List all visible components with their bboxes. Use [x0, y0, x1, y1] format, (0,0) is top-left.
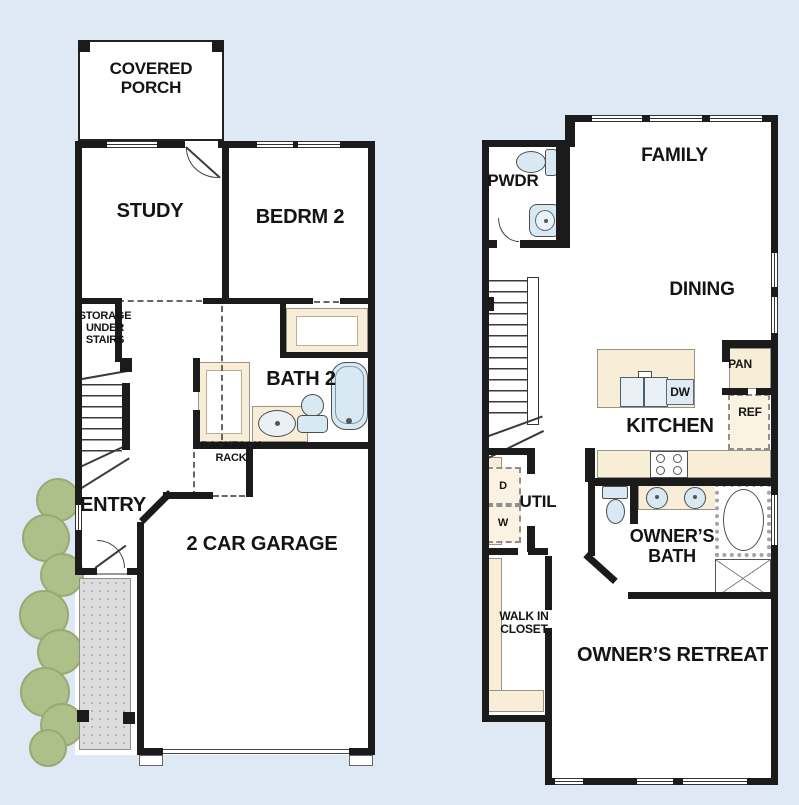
room-label-covered-porch: COVERED PORCH	[91, 60, 211, 97]
wall-segment	[588, 478, 771, 486]
bush	[29, 729, 67, 767]
porch-post	[78, 40, 90, 52]
toilet-bowl	[301, 394, 324, 417]
wall-segment	[482, 715, 552, 722]
wall-segment	[771, 333, 778, 495]
wall-segment	[482, 548, 518, 555]
wall-segment	[756, 388, 778, 395]
porch-post	[212, 40, 224, 52]
tub-faucet	[346, 418, 352, 424]
wall-segment	[163, 492, 213, 499]
garage-door	[163, 749, 349, 754]
wall-segment	[482, 240, 497, 248]
garage-pier	[139, 755, 163, 766]
wall-segment	[157, 141, 185, 148]
room-label-study: STUDY	[110, 200, 190, 222]
wall-segment	[75, 568, 97, 575]
wall-segment	[585, 448, 595, 482]
wall-segment	[137, 522, 144, 755]
wall-segment	[527, 448, 535, 474]
room-label-bedrm2: BEDRM 2	[252, 206, 348, 228]
sink-drain	[275, 421, 280, 426]
room-label-bath2: BATH 2	[258, 368, 344, 390]
wall-segment	[575, 115, 592, 122]
bath2-linen-shelf	[206, 370, 242, 434]
window	[771, 297, 778, 333]
room-label-washer: W	[486, 517, 520, 529]
window	[683, 778, 747, 785]
room-label-garage: 2 CAR GARAGE	[178, 533, 346, 555]
closet-shelf	[484, 690, 544, 712]
room-label-entry: ENTRY	[78, 494, 148, 516]
window	[555, 778, 583, 785]
garage-opening-dashed	[213, 495, 245, 497]
bedrm2-closet-shelf	[296, 316, 358, 346]
stove-burner	[656, 466, 665, 475]
wall-segment	[226, 298, 313, 304]
wall-segment	[528, 548, 548, 555]
stove-burner	[673, 454, 682, 463]
toilet-tank	[602, 486, 628, 499]
window	[637, 778, 673, 785]
wall-segment	[642, 115, 650, 122]
window	[771, 253, 778, 287]
room-label-ref: REF	[734, 406, 766, 419]
room-label-walk-in-closet: WALK IN CLOSET	[486, 610, 562, 636]
window	[592, 115, 642, 122]
wall-segment	[545, 715, 552, 785]
stair-rail	[527, 277, 539, 425]
toilet-bowl	[606, 499, 625, 524]
room-label-family: FAMILY	[632, 146, 717, 167]
wall-segment	[520, 240, 570, 248]
wall-segment	[722, 388, 748, 395]
wall-segment	[722, 340, 778, 348]
stair-rail-wall	[122, 383, 130, 450]
wall-segment	[120, 358, 132, 372]
stove-burner	[673, 466, 682, 475]
refrigerator-outline	[728, 394, 770, 450]
walkway-post	[123, 712, 135, 724]
window	[298, 141, 340, 148]
wall-segment	[222, 141, 229, 304]
room-label-pan: PAN	[719, 358, 761, 371]
room-label-owners-bath: OWNER’S BATH	[622, 527, 722, 567]
wall-segment	[771, 115, 778, 253]
hall-dashed	[221, 306, 223, 440]
garage-pier	[349, 755, 373, 766]
wall-segment	[673, 778, 683, 785]
stove-burner	[656, 454, 665, 463]
walkway-post	[77, 710, 89, 722]
window	[771, 495, 778, 545]
wall-segment	[482, 297, 494, 311]
wall-segment	[771, 545, 778, 785]
room-label-util: UTIL	[508, 493, 568, 512]
sink-drain	[693, 495, 697, 499]
alcove-dashed	[193, 452, 195, 497]
wall-segment	[137, 748, 163, 755]
sink-drain	[655, 495, 659, 499]
wall-segment	[193, 358, 200, 392]
stove	[650, 451, 688, 478]
wall-segment	[588, 486, 595, 556]
kitchen-sink	[620, 377, 668, 407]
wall-segment	[340, 298, 368, 304]
wall-segment	[747, 778, 778, 785]
window	[710, 115, 762, 122]
toilet-tank	[297, 415, 328, 433]
room-label-backpack-rack: BACKPACK RACK	[196, 440, 266, 464]
wall-segment	[702, 115, 710, 122]
opening-dashed	[118, 300, 202, 302]
floor2-footprint	[552, 715, 582, 785]
wall-segment	[556, 140, 570, 247]
room-label-kitchen: KITCHEN	[625, 415, 715, 437]
wall-segment	[628, 592, 771, 599]
toilet-bowl	[516, 151, 546, 173]
room-label-dining: DINING	[662, 280, 742, 301]
wall-segment	[280, 304, 286, 358]
wall-segment	[771, 287, 778, 297]
wall-segment	[545, 628, 552, 722]
window	[257, 141, 293, 148]
wall-segment	[545, 556, 552, 610]
room-label-dw: DW	[666, 386, 694, 399]
room-label-dryer: D	[486, 480, 520, 492]
window	[107, 141, 157, 148]
wall-segment	[75, 298, 118, 304]
bathtub	[723, 489, 764, 551]
wall-segment	[280, 352, 368, 358]
walkway	[79, 578, 131, 750]
kitchen-faucet	[638, 371, 652, 378]
bedrm2-door-dashed	[314, 301, 339, 303]
wall-segment	[349, 748, 375, 755]
wall-segment	[583, 778, 637, 785]
wall-segment	[630, 486, 638, 524]
floorplan-canvas: COVERED PORCH STUDY BEDRM 2 STORAGE UNDE…	[0, 0, 799, 805]
room-label-storage: STORAGE UNDER STAIRS	[74, 310, 136, 346]
room-label-pwdr: PWDR	[482, 172, 544, 191]
window	[650, 115, 702, 122]
room-label-owners-retreat: OWNER’S RETREAT	[577, 644, 767, 666]
sink-drain	[544, 219, 548, 223]
